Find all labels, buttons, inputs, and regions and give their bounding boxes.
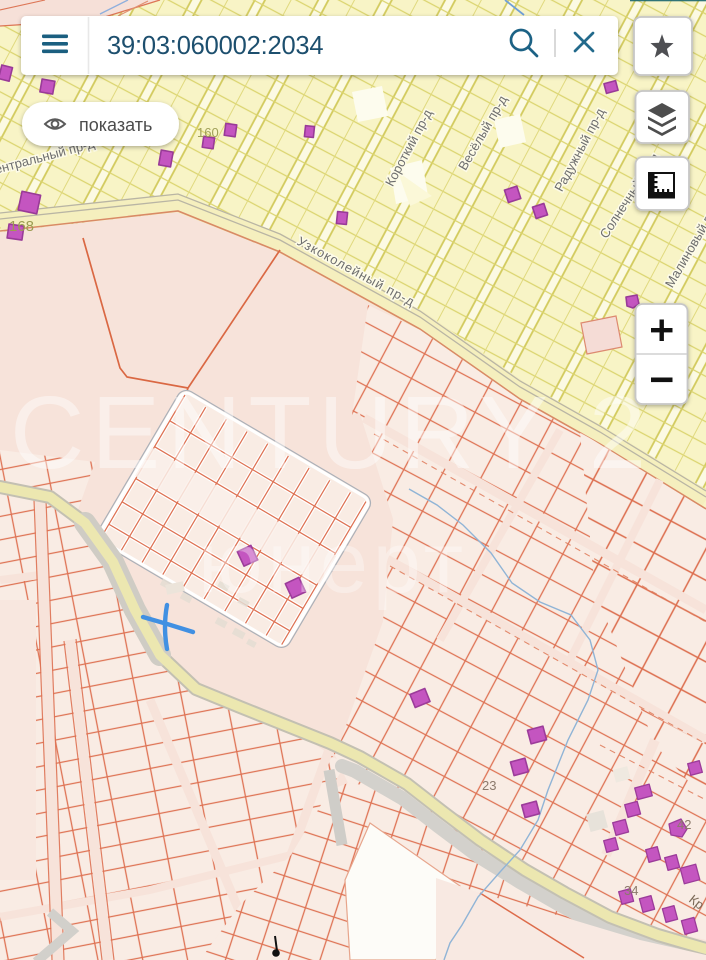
svg-text:39:03:060002:2034: 39:03:060002:2034 xyxy=(107,32,323,60)
svg-text:34: 34 xyxy=(624,883,638,898)
svg-text:23: 23 xyxy=(482,778,496,793)
svg-text:42: 42 xyxy=(677,817,691,832)
svg-text:160: 160 xyxy=(197,125,219,140)
svg-text:CENTURY 2: CENTURY 2 xyxy=(10,375,653,490)
svg-text:168: 168 xyxy=(9,218,34,235)
svg-text:юнерт: юнерт xyxy=(198,515,468,611)
svg-text:показать: показать xyxy=(79,115,152,135)
